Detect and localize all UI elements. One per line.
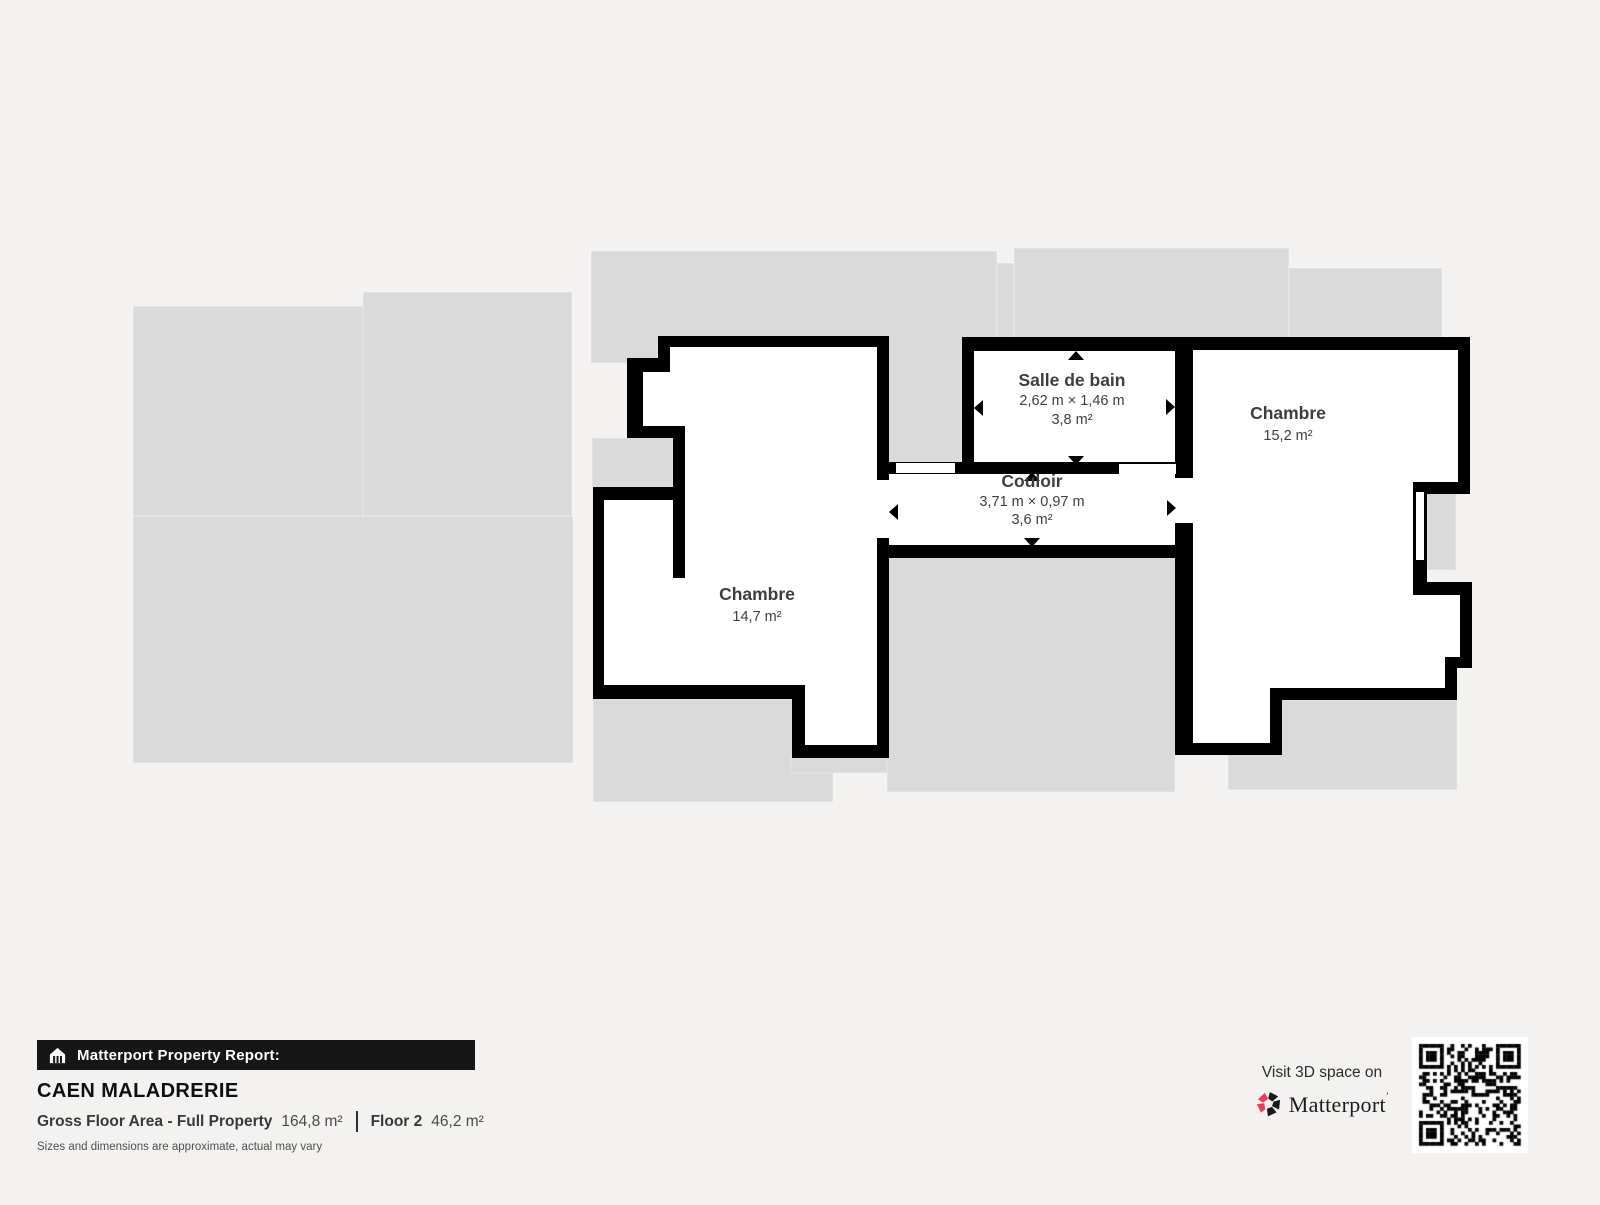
qr-code-box [1412,1037,1528,1153]
gfa-value: 164,8 m² [281,1113,342,1131]
inactive-area [133,516,573,763]
inactive-area [1427,493,1456,570]
inactive-area [997,263,1014,338]
disclaimer-note: Sizes and dimensions are approximate, ac… [37,1141,322,1153]
property-name: CAEN MALADRERIE [37,1080,239,1103]
room-label-area: 14,7 m² [732,609,781,625]
inactive-area [592,438,673,487]
floor-label: Floor 2 [371,1113,423,1131]
door-opening [896,463,955,473]
door-opening [876,480,890,538]
report-title-bar: Matterport Property Report: [37,1040,475,1070]
room-label-dimensions: 3,71 m × 0,97 m [979,494,1084,510]
gfa-label: Gross Floor Area - Full Property [37,1113,272,1131]
room-label-title: Couloir [1001,471,1062,491]
door-opening [1119,464,1176,474]
divider [356,1111,358,1132]
room-label-title: Chambre [719,584,795,604]
visit-3d-cta: Visit 3D space on Matterport’ [1238,1064,1406,1118]
matterport-logo-icon [1255,1091,1282,1118]
floor-plan: Chambre 14,7 m² Salle de bain 2,62 m × 1… [0,0,1600,1200]
matterport-brand: Matterport’ [1238,1091,1406,1118]
trademark-mark: ’ [1386,1091,1389,1101]
house-icon [48,1046,67,1065]
room-label-title: Salle de bain [1019,370,1126,390]
inactive-area [1014,248,1289,338]
report-title: Matterport Property Report: [77,1047,280,1064]
qr-code [1412,1037,1528,1153]
matterport-wordmark: Matterport’ [1289,1092,1389,1118]
room-label-dimensions: 2,62 m × 1,46 m [1019,393,1124,409]
inactive-area [791,758,890,773]
floor-area-summary: Gross Floor Area - Full Property 164,8 m… [37,1111,484,1132]
room-label-area: 15,2 m² [1263,428,1312,444]
room-label-area: 3,6 m² [1011,512,1052,528]
inactive-area [363,292,572,516]
window-marker [1416,492,1424,560]
room-label-title: Chambre [1250,403,1326,423]
inactive-area [1289,268,1442,337]
room-label-area: 3,8 m² [1051,412,1092,428]
floor-value: 46,2 m² [431,1113,484,1131]
door-opening [1175,478,1193,523]
visit-label: Visit 3D space on [1238,1064,1406,1082]
inactive-area [133,306,363,516]
property-report-page: Chambre 14,7 m² Salle de bain 2,62 m × 1… [0,0,1600,1200]
inactive-area [887,558,1175,792]
